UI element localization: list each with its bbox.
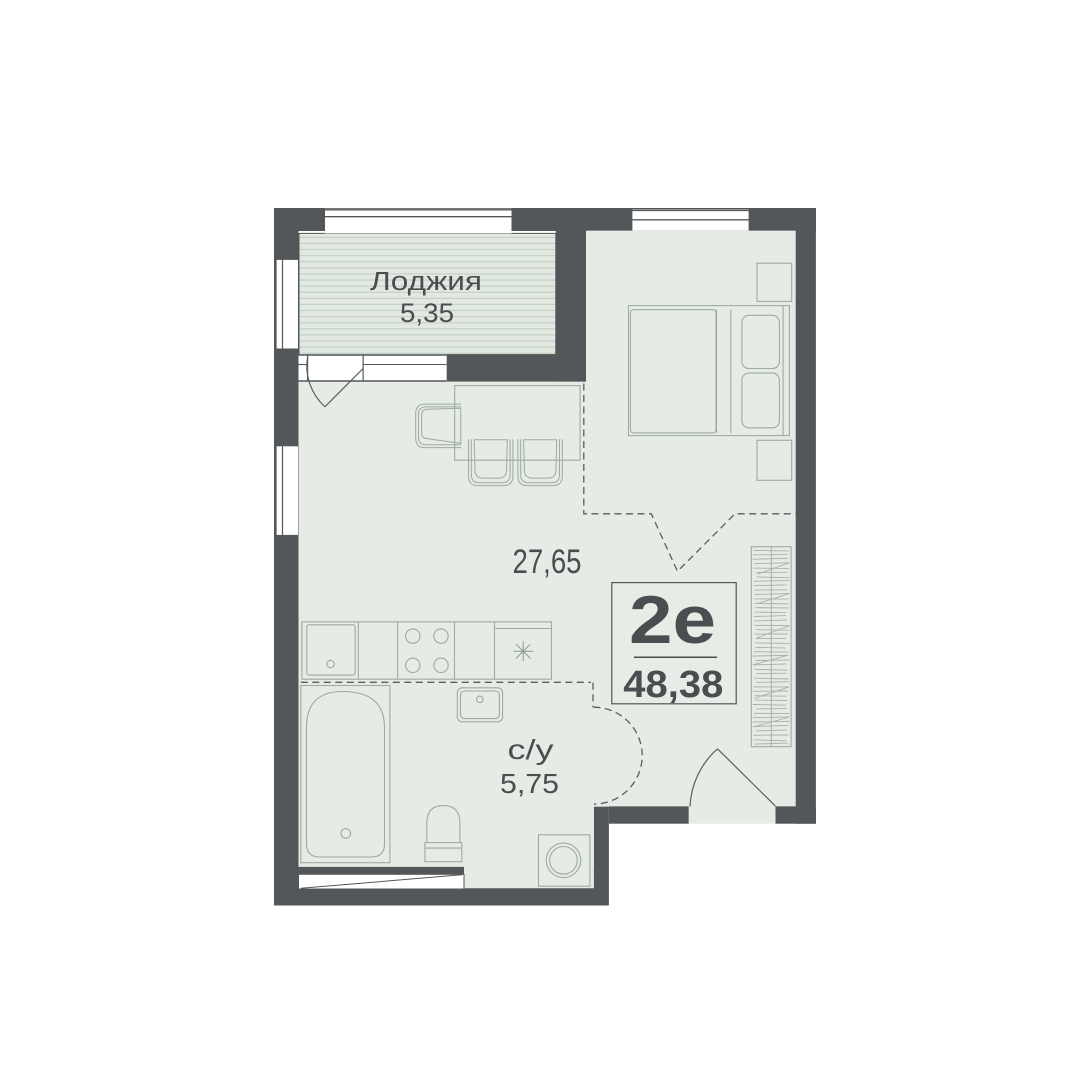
svg-text:5,75: 5,75: [500, 768, 559, 799]
svg-text:с/у: с/у: [508, 734, 554, 765]
svg-text:27,65: 27,65: [513, 543, 582, 581]
svg-text:48,38: 48,38: [623, 664, 723, 706]
svg-text:2е: 2е: [629, 582, 716, 658]
svg-text:Лоджия: Лоджия: [370, 268, 482, 296]
svg-text:5,35: 5,35: [400, 298, 454, 328]
